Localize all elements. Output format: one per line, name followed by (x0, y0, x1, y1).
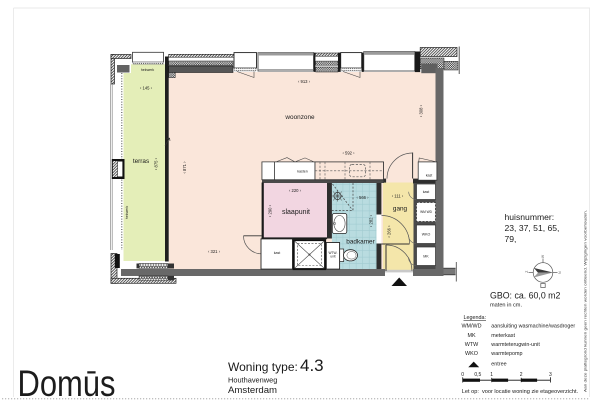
svg-text:GBO: ca. 60,0 m2: GBO: ca. 60,0 m2 (490, 290, 561, 300)
svg-text:entree: entree (491, 361, 506, 367)
svg-text:woonzone: woonzone (284, 114, 315, 121)
svg-text:kast: kast (423, 190, 430, 194)
svg-text:‹ 282 ›: ‹ 282 › (368, 214, 373, 227)
svg-text:Legenda:: Legenda: (464, 315, 486, 321)
svg-text:‹ 871 ›: ‹ 871 › (182, 161, 187, 174)
svg-text:WTW: WTW (465, 342, 479, 348)
svg-text:0: 0 (461, 372, 464, 378)
svg-text:maten in cm.: maten in cm. (490, 303, 522, 309)
svg-text:huisnummer:: huisnummer: (505, 212, 555, 222)
svg-text:‹ 266 ›: ‹ 266 › (387, 225, 392, 238)
svg-text:1: 1 (490, 372, 493, 378)
svg-text:‹ 875 ›: ‹ 875 › (154, 157, 159, 170)
svg-text:‹ 592 ›: ‹ 592 › (342, 151, 355, 156)
svg-text:Domūs: Domūs (18, 362, 116, 400)
svg-text:‹ 111 ›: ‹ 111 › (392, 194, 404, 199)
svg-text:WM WD: WM WD (420, 210, 433, 214)
svg-text:hekwerk: hekwerk (125, 206, 129, 220)
svg-text:kast: kast (274, 251, 281, 255)
svg-text:79,: 79, (505, 234, 517, 244)
svg-text:WM/WD: WM/WD (461, 324, 481, 330)
svg-text:terras: terras (133, 158, 149, 165)
svg-text:warmtepomp: warmtepomp (490, 351, 522, 357)
svg-text:badkamer: badkamer (346, 239, 375, 246)
svg-text:Amsterdam: Amsterdam (228, 385, 277, 396)
svg-text:WKO: WKO (465, 351, 478, 357)
svg-text:23, 37, 51, 65,: 23, 37, 51, 65, (505, 223, 560, 233)
svg-text:Aan deze plattegrond kunnen ge: Aan deze plattegrond kunnen geen rechten… (584, 210, 588, 392)
svg-text:meterkast: meterkast (491, 333, 515, 339)
svg-text:‹ 220 ›: ‹ 220 › (289, 188, 302, 193)
svg-text:3: 3 (549, 372, 552, 378)
svg-text:Houthavenweg: Houthavenweg (228, 376, 277, 385)
svg-text:‹ 566 ›: ‹ 566 › (356, 195, 369, 200)
svg-text:‹ 145 ›: ‹ 145 › (140, 86, 153, 91)
svg-text:voor locatie woning zie etageo: voor locatie woning zie etageoverzicht. (482, 389, 579, 395)
svg-text:aansluiting wasmachine/wasdrog: aansluiting wasmachine/wasdroger (491, 324, 575, 330)
svg-text:‹ 308 ›: ‹ 308 › (419, 104, 424, 117)
svg-text:Z: Z (525, 271, 529, 273)
svg-text:0,5: 0,5 (474, 372, 481, 378)
svg-text:kasten: kasten (297, 169, 308, 173)
svg-text:MK: MK (467, 333, 475, 339)
svg-text:gang: gang (393, 206, 408, 213)
svg-text:Woning type:: Woning type: (228, 360, 298, 374)
svg-text:slaapunit: slaapunit (282, 209, 310, 216)
svg-text:warmteterugwin-unit: warmteterugwin-unit (490, 342, 540, 348)
svg-text:MK: MK (423, 255, 429, 259)
svg-text:‹ 290 ›: ‹ 290 › (268, 204, 273, 217)
svg-text:4.3: 4.3 (300, 356, 324, 375)
svg-text:2: 2 (520, 372, 523, 378)
svg-text:‹ 913 ›: ‹ 913 › (298, 79, 311, 84)
svg-text:‹ 321 ›: ‹ 321 › (208, 249, 221, 254)
svg-text:hekwerk: hekwerk (141, 68, 155, 72)
svg-text:kast: kast (426, 174, 433, 178)
svg-text:unit: unit (330, 255, 335, 259)
svg-text:Let op:: Let op: (462, 389, 480, 395)
svg-text:WKO: WKO (422, 233, 431, 237)
